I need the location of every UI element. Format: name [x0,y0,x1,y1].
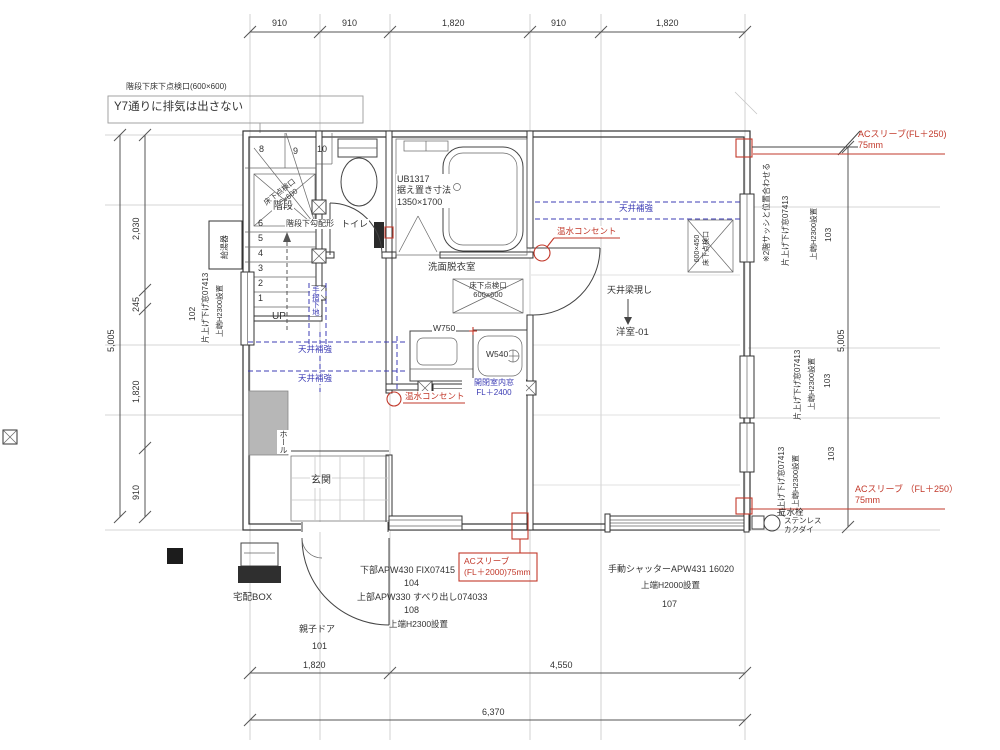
dim-left-1820: 1,820 [131,380,142,403]
stair-step-3: 3 [258,263,263,274]
label-lower-window: 下部APW430 FIX07415 [360,565,455,576]
stair-step-10: 10 [317,144,327,155]
stair-step-9: 9 [293,146,298,157]
dim-left-5005: 5,005 [106,329,117,352]
dim-bottom-1820: 1,820 [303,660,326,671]
label-bath: UB1317 据え置き寸法 1350×1700 [396,174,452,208]
note-under-stairs: 階段下勾配形 [285,219,335,229]
annotation-layer: 階段下床下点検口(600×600)Y7通りに排気は出さない9109101,820… [0,0,1000,750]
label-hall: ホール [277,430,289,454]
label-stairs: 階段 [272,201,294,214]
ac-sleeve-2000: ACスリーブ (FL＋2000)75mm [464,556,531,577]
num-104: 104 [404,578,419,589]
ceiling-reinforce-2: 天井補強 [297,344,333,355]
win-a-name: 片上げ下げ窓07413 [781,196,791,266]
onsui-label-1: 温水コンセント [556,226,618,237]
note-stair-hatch: 階段下床下点検口(600×600) [126,82,227,92]
dim-top-1820b: 1,820 [656,18,679,29]
note-h2300: 上端H2300設置 [389,619,448,630]
dim-top-1820a: 1,820 [442,18,465,29]
handrail-base: 手摺下地 [310,286,321,316]
room-hatch: 600×450 床下点検口 [694,231,712,266]
label-washroom: 洗面脱衣室 [428,262,476,274]
label-toilet: トイレ [340,219,369,230]
win-c-height: 上端H2300設置 [791,455,800,507]
dim-top-910a: 910 [272,18,287,29]
win-a-num: 103 [823,228,834,242]
label-upper-window: 上部APW330 すべり出し074033 [357,592,487,603]
stair-step-6: 6 [258,218,263,229]
stair-step-8: 8 [259,144,264,155]
label-beam: 天井梁現し [607,285,652,296]
stair-step-1: 1 [258,293,263,304]
win-b-name: 片上げ下げ窓07413 [793,350,803,420]
onsui-label-2: 温水コンセント [404,391,466,402]
ceiling-reinforce-1: 天井補強 [618,203,654,214]
dim-left-245: 245 [131,297,142,312]
num-107: 107 [662,599,677,610]
win-a-note: ※2階サッシと位置合わせる [762,163,772,262]
win-d-name: 片上げ下げ窓07413 [201,273,211,343]
num-101: 101 [312,641,327,652]
num-108: 108 [404,605,419,616]
floor-plan-canvas: 階段下床下点検口(600×600)Y7通りに排気は出さない9109101,820… [0,0,1000,750]
note-h2000: 上端H2000設置 [641,580,700,591]
win-c-name: 片上げ下げ窓07413 [777,447,787,517]
washroom-hatch: 床下点検口 600×600 [455,281,521,300]
ceiling-reinforce-3: 天井補強 [297,373,333,384]
dim-bottom-6370: 6,370 [482,707,505,718]
label-genkan: 玄関 [310,475,332,488]
interior-window: 開閉室内窓 FL＋2400 [462,378,526,398]
ac-sleeve-top: ACスリーブ(FL＋250) 75mm [858,129,946,152]
dim-top-910b: 910 [342,18,357,29]
dim-left-910: 910 [131,485,142,500]
label-up: UP [272,311,286,324]
label-w750: W750 [432,323,456,334]
win-b-num: 103 [822,374,833,388]
ac-sleeve-bottom: ACスリーブ （FL＋250） 75mm [855,484,958,507]
note-y7-exhaust: Y7通りに排気は出さない [114,100,243,114]
label-stainless: ステンレス カクダイ [784,516,822,535]
label-delivery-box: 宅配BOX [233,592,272,604]
win-d-num: 102 [187,307,198,321]
win-b-height: 上端H2300設置 [807,358,816,410]
dim-left-2030: 2,030 [131,217,142,240]
label-water-heater: 給湯器 [220,235,230,259]
label-w540: W540 [485,349,509,360]
label-room01: 洋室-01 [616,327,649,339]
dim-right-5005: 5,005 [836,329,847,352]
dim-top-910c: 910 [551,18,566,29]
win-c-num: 103 [826,447,837,461]
label-shutter: 手動シャッターAPW431 16020 [608,564,734,575]
dim-bottom-4550: 4,550 [550,660,573,671]
stair-step-2: 2 [258,278,263,289]
win-a-height: 上端H2300設置 [809,208,818,260]
stair-step-4: 4 [258,248,263,259]
label-entry-door: 親子ドア [299,624,335,635]
stair-step-5: 5 [258,233,263,244]
win-d-height: 上端H2300設置 [215,285,224,337]
